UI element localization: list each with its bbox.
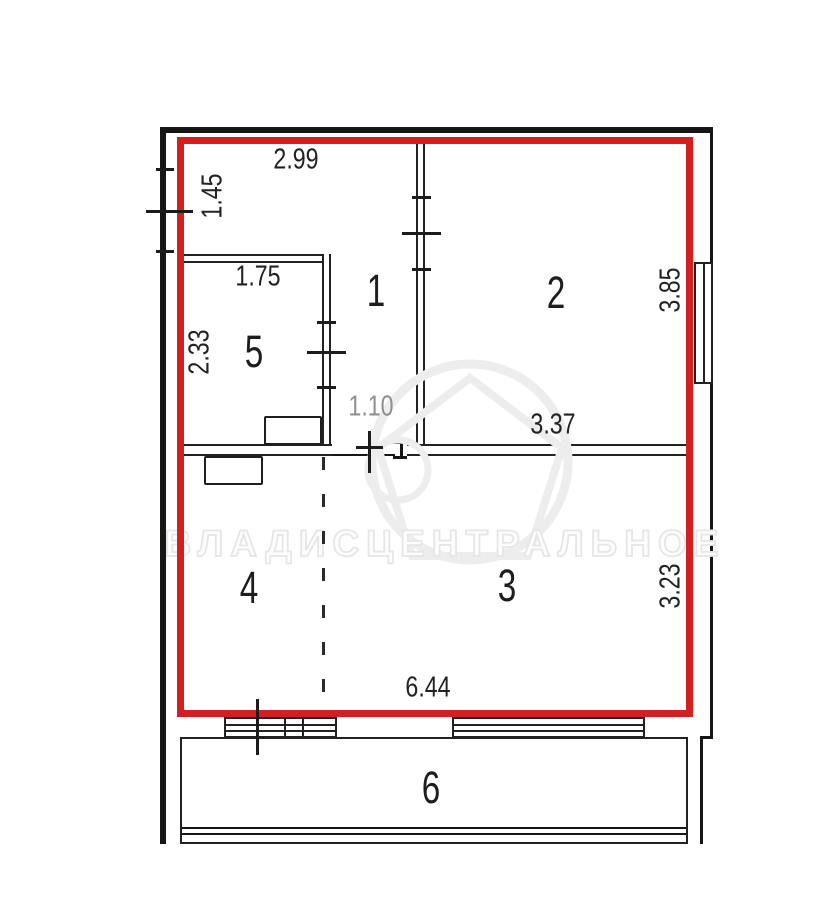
window-right-wall [694,262,713,384]
dimension-label-1-45: 1.45 [197,173,230,218]
dim-cross-horizontal [356,446,383,449]
dim-tick [412,196,431,199]
dim-tick-long [402,232,441,235]
dim-tick-long [146,210,193,213]
room-label-5: 5 [245,326,264,378]
outer-wall-step-vertical [700,736,703,844]
dim-tick [156,250,174,253]
dim-cross-vertical [368,431,371,473]
outer-wall-left [160,127,166,844]
dimension-label-1-75: 1.75 [235,261,280,294]
apartment-boundary-highlight [177,137,693,717]
dimension-label-6-44: 6.44 [405,672,450,705]
dimension-label-2-33: 2.33 [184,329,217,374]
window-glazing-line [454,730,643,732]
room-label-6: 6 [422,762,441,814]
dim-tick [317,321,336,324]
window-bottom-left [224,717,337,738]
window-divider [284,719,286,736]
window-glazing-line [454,724,643,726]
dim-tick [317,386,336,389]
balcony-railing-line [182,833,686,835]
window-glazing-line [226,730,335,732]
outer-wall-right [710,133,713,739]
dim-tick [156,168,174,171]
window-glazing-line [703,264,705,382]
room-label-3: 3 [498,560,517,612]
dimension-label-3-85: 3.85 [655,267,688,312]
floor-plan: ВЛАДИСЦЕНТРАЛЬНОЕ [0,0,817,924]
window-bottom-right [452,717,645,738]
room-label-1: 1 [367,265,386,317]
dashed-partition-line [322,457,325,713]
outer-wall-top [160,127,713,133]
room-label-4: 4 [240,562,259,614]
room-label-2: 2 [547,267,566,319]
dimension-label-3-37: 3.37 [530,409,575,442]
dimension-label-2-99: 2.99 [273,144,318,177]
dim-tick [412,268,431,271]
dim-tick-long [307,351,346,354]
balcony-railing-line [182,827,686,829]
dimension-label-3-23: 3.23 [655,563,688,608]
window-glazing-line [226,724,335,726]
window-divider [302,719,304,736]
dim-tick-vertical [256,699,259,755]
dimension-label-1-10: 1.10 [348,391,393,424]
